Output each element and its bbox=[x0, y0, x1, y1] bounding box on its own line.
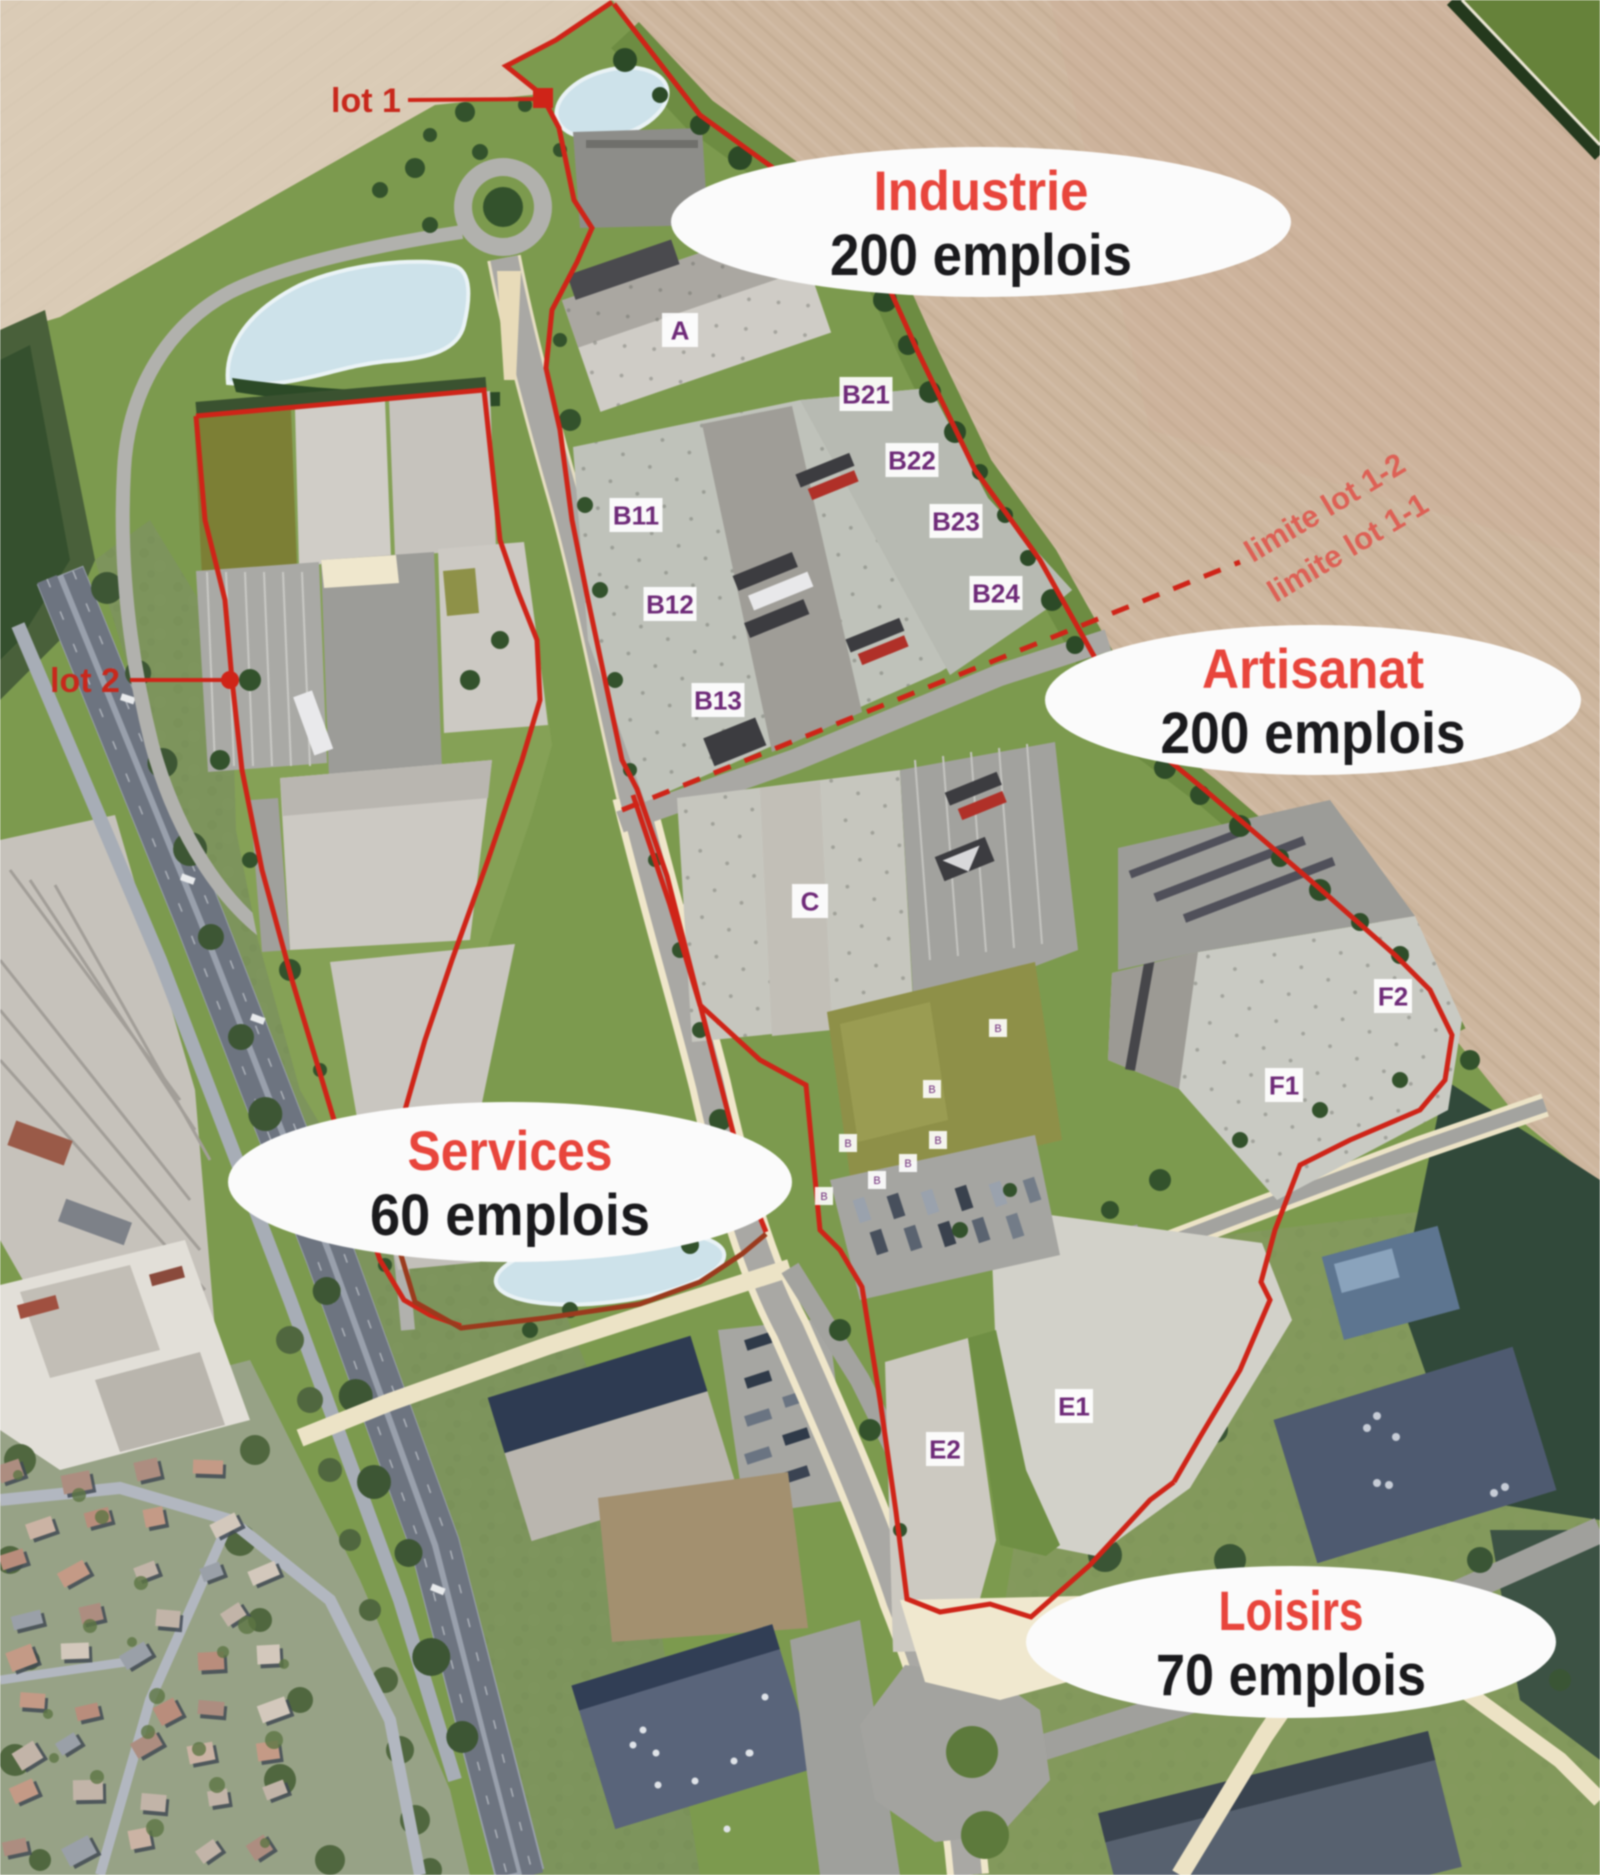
svg-text:Loisirs: Loisirs bbox=[1219, 1579, 1364, 1642]
svg-text:60 emplois: 60 emplois bbox=[370, 1183, 650, 1248]
svg-text:B: B bbox=[873, 1175, 880, 1187]
svg-text:Industrie: Industrie bbox=[874, 159, 1089, 222]
svg-text:70 emplois: 70 emplois bbox=[1156, 1643, 1426, 1708]
svg-text:F1: F1 bbox=[1269, 1070, 1299, 1100]
svg-text:lot 2: lot 2 bbox=[50, 662, 120, 700]
svg-text:B: B bbox=[928, 1084, 935, 1096]
svg-text:E1: E1 bbox=[1058, 1391, 1090, 1421]
svg-text:A: A bbox=[671, 315, 690, 345]
svg-text:B21: B21 bbox=[842, 379, 890, 409]
svg-text:B: B bbox=[844, 1138, 851, 1150]
svg-text:Services: Services bbox=[408, 1119, 613, 1182]
svg-text:B12: B12 bbox=[646, 589, 694, 619]
svg-text:200 emplois: 200 emplois bbox=[830, 223, 1132, 288]
svg-text:B: B bbox=[820, 1191, 827, 1203]
svg-text:B22: B22 bbox=[888, 445, 936, 475]
svg-text:B: B bbox=[994, 1023, 1001, 1035]
svg-text:B24: B24 bbox=[972, 578, 1020, 608]
svg-text:C: C bbox=[801, 886, 820, 916]
svg-text:B11: B11 bbox=[613, 500, 659, 530]
svg-text:200 emplois: 200 emplois bbox=[1161, 701, 1466, 766]
svg-text:F2: F2 bbox=[1378, 981, 1408, 1011]
svg-text:B13: B13 bbox=[694, 685, 742, 715]
svg-text:B: B bbox=[934, 1135, 941, 1147]
svg-text:lot 1: lot 1 bbox=[331, 82, 401, 120]
svg-text:B23: B23 bbox=[932, 506, 980, 536]
svg-text:E2: E2 bbox=[929, 1434, 961, 1464]
svg-text:B: B bbox=[904, 1158, 911, 1170]
svg-text:Artisanat: Artisanat bbox=[1202, 637, 1424, 700]
